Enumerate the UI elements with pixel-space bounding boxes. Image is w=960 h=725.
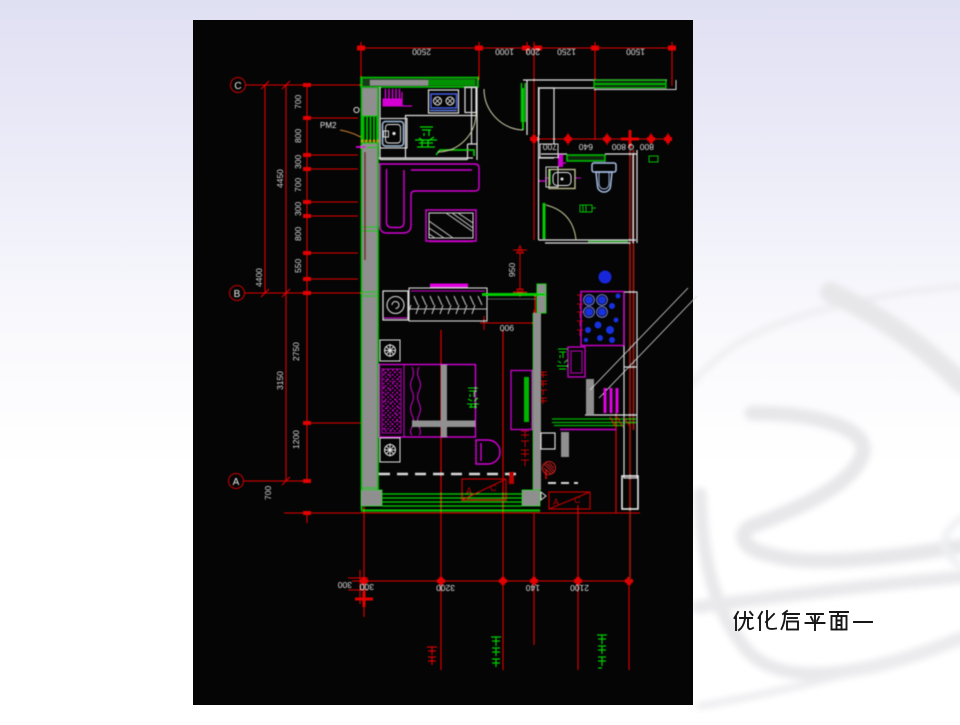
svg-text:C: C bbox=[234, 81, 241, 92]
svg-text:700: 700 bbox=[293, 178, 303, 192]
svg-text:300: 300 bbox=[293, 155, 303, 169]
svg-text:4450: 4450 bbox=[275, 169, 285, 188]
svg-text:A: A bbox=[233, 477, 240, 488]
svg-text:2750: 2750 bbox=[291, 342, 301, 361]
svg-text:2100: 2100 bbox=[570, 583, 589, 593]
svg-text:800: 800 bbox=[293, 129, 303, 143]
svg-text:C: C bbox=[490, 483, 497, 493]
svg-text:300: 300 bbox=[360, 582, 374, 592]
svg-text:1000: 1000 bbox=[495, 47, 514, 57]
svg-text:A: A bbox=[553, 497, 559, 507]
svg-text:2500: 2500 bbox=[412, 47, 431, 57]
svg-text:800: 800 bbox=[612, 142, 626, 152]
svg-text:4400: 4400 bbox=[254, 268, 264, 287]
svg-text:700: 700 bbox=[293, 95, 303, 109]
svg-text:3150: 3150 bbox=[275, 371, 285, 390]
svg-text:300: 300 bbox=[338, 580, 352, 590]
svg-text:200: 200 bbox=[526, 47, 540, 57]
svg-text:640: 640 bbox=[579, 142, 593, 152]
svg-text:900: 900 bbox=[500, 323, 514, 333]
svg-text:140: 140 bbox=[526, 583, 540, 593]
svg-text:300: 300 bbox=[293, 202, 303, 216]
svg-text:800: 800 bbox=[293, 227, 303, 241]
svg-text:B: B bbox=[234, 289, 241, 300]
svg-text:A: A bbox=[466, 486, 472, 496]
svg-text:800: 800 bbox=[640, 142, 654, 152]
svg-text:950: 950 bbox=[507, 263, 517, 277]
svg-text:1500: 1500 bbox=[626, 47, 645, 57]
svg-text:C: C bbox=[574, 495, 581, 505]
svg-text:3200: 3200 bbox=[436, 583, 455, 593]
svg-text:1200: 1200 bbox=[291, 430, 301, 449]
svg-text:550: 550 bbox=[293, 259, 303, 273]
svg-text:1250: 1250 bbox=[557, 47, 576, 57]
svg-text:700: 700 bbox=[263, 486, 273, 500]
svg-text:PM2: PM2 bbox=[320, 121, 337, 130]
